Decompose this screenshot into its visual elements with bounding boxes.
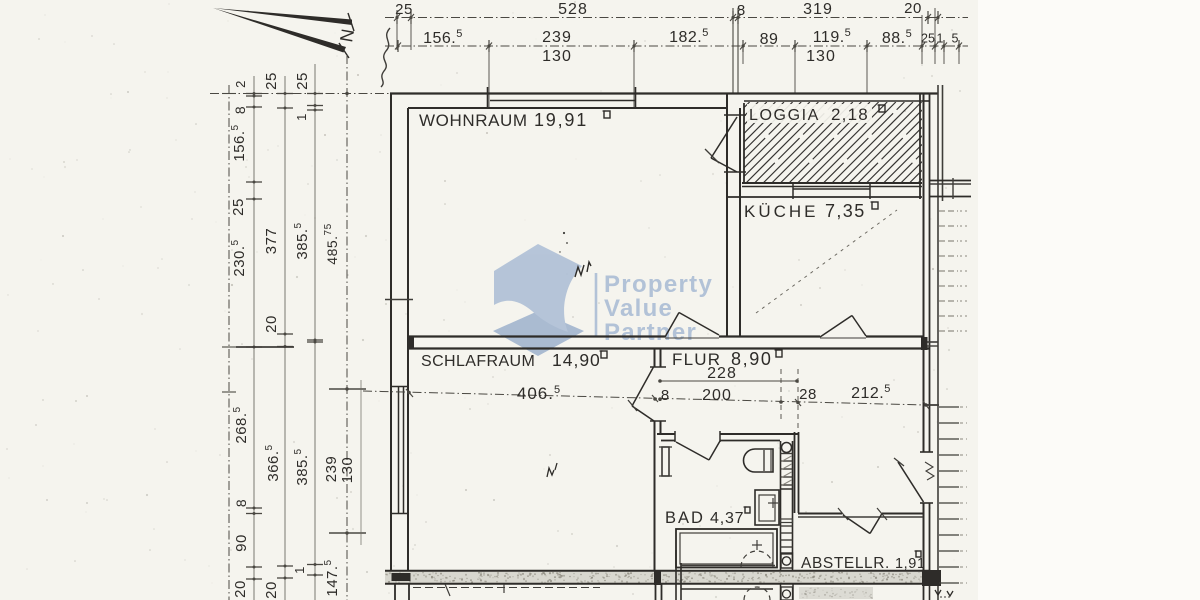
svg-text:WOHNRAUM: WOHNRAUM xyxy=(419,111,528,130)
svg-text:8: 8 xyxy=(232,106,248,114)
svg-text:239: 239 xyxy=(323,456,340,483)
svg-text:25: 25 xyxy=(921,32,935,46)
svg-text:Property: Property xyxy=(604,271,713,298)
svg-text:130: 130 xyxy=(339,457,356,484)
svg-text:2: 2 xyxy=(233,80,248,88)
svg-text:Value: Value xyxy=(604,295,673,322)
svg-text:130: 130 xyxy=(542,48,572,65)
svg-text:FLUR: FLUR xyxy=(672,350,721,369)
svg-text:SCHLAFRAUM: SCHLAFRAUM xyxy=(421,353,535,370)
svg-text:20: 20 xyxy=(263,581,280,599)
svg-text:BAD: BAD xyxy=(665,509,705,527)
svg-text:25: 25 xyxy=(294,72,311,90)
svg-text:239: 239 xyxy=(542,29,572,46)
svg-text:7,35: 7,35 xyxy=(825,201,866,221)
svg-text:130: 130 xyxy=(806,48,836,65)
svg-text:25: 25 xyxy=(230,198,247,216)
svg-text:319: 319 xyxy=(803,1,833,18)
svg-text:20: 20 xyxy=(263,315,280,333)
svg-text:1: 1 xyxy=(937,32,944,46)
svg-text:1: 1 xyxy=(292,566,307,574)
svg-text:25: 25 xyxy=(263,72,280,90)
svg-text:8,90: 8,90 xyxy=(731,349,772,369)
svg-text:KÜCHE: KÜCHE xyxy=(744,202,819,221)
svg-text:28: 28 xyxy=(799,386,817,403)
svg-text:20: 20 xyxy=(904,0,922,17)
svg-text:19,91: 19,91 xyxy=(534,110,588,130)
svg-text:5: 5 xyxy=(952,32,959,46)
svg-text:90: 90 xyxy=(233,534,250,552)
svg-text:Partner: Partner xyxy=(604,319,697,346)
svg-text:1: 1 xyxy=(294,113,309,121)
svg-text:20: 20 xyxy=(232,580,249,598)
svg-text:8: 8 xyxy=(661,387,669,404)
svg-text:8: 8 xyxy=(233,499,249,507)
svg-text:14,90: 14,90 xyxy=(552,350,601,370)
svg-text:ABSTELLR.: ABSTELLR. xyxy=(801,555,890,572)
svg-text:528: 528 xyxy=(558,1,588,18)
svg-text:4,37: 4,37 xyxy=(710,510,744,527)
svg-text:89: 89 xyxy=(760,31,779,48)
svg-text:2,18: 2,18 xyxy=(831,105,869,124)
svg-text:200: 200 xyxy=(702,387,732,404)
svg-text:LOGGIA: LOGGIA xyxy=(749,107,820,124)
svg-text:25: 25 xyxy=(395,1,413,18)
svg-text:1,91: 1,91 xyxy=(895,556,926,572)
svg-text:377: 377 xyxy=(263,228,280,255)
